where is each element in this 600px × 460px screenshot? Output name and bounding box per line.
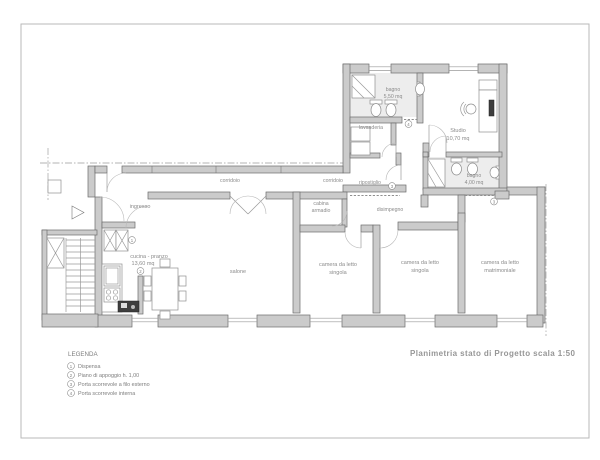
label-matrimoniale-2: matrimoniale bbox=[484, 268, 515, 274]
floor-plan-svg: ingresso cucina - pranzo 13,60 mq salone… bbox=[0, 0, 600, 460]
dining-table bbox=[144, 259, 186, 319]
stairs bbox=[66, 238, 95, 312]
legend-heading: LEGENDA bbox=[68, 351, 98, 358]
office-chair bbox=[466, 104, 476, 114]
legend-item-3: Porta scorrevole a filo esterno bbox=[78, 382, 150, 388]
label-cucina-area: 13,60 mq bbox=[132, 261, 155, 267]
label-bagno1-area: 5,50 mq bbox=[384, 94, 403, 100]
label-lavanderia: lavanderia bbox=[359, 125, 383, 131]
bidet bbox=[467, 158, 478, 162]
label-bagno2: bagno bbox=[467, 173, 482, 179]
legend: LEGENDA 1 Dispensa 2 Piano di appoggio h… bbox=[68, 351, 150, 397]
drawing-title: Planimetria stato di Progetto scala 1:50 bbox=[410, 349, 576, 358]
drawing-sheet: ingresso cucina - pranzo 13,60 mq salone… bbox=[0, 0, 600, 460]
label-camera1-1: camera da letto bbox=[319, 262, 357, 268]
kitchen-sink bbox=[104, 266, 120, 286]
label-ripostiglio: ripostiglio bbox=[359, 180, 381, 186]
label-cabina-2: armadio bbox=[312, 208, 331, 214]
legend-item-2: Piano di appoggio h. 1,00 bbox=[78, 373, 139, 379]
label-bagno2-area: 4,00 mq bbox=[465, 180, 484, 186]
stove bbox=[104, 288, 120, 302]
lavanderia-fixtures bbox=[351, 127, 370, 155]
label-camera1-2: singola bbox=[329, 270, 347, 276]
cabinet bbox=[479, 80, 497, 90]
washer bbox=[351, 142, 370, 155]
label-camera2-1: camera da letto bbox=[401, 260, 439, 266]
label-disimpegno: disimpegno bbox=[377, 207, 404, 213]
studio-furniture bbox=[461, 80, 497, 132]
legend-item-4: Porta scorrevole interna bbox=[78, 391, 135, 397]
stairs-elevator bbox=[47, 180, 95, 312]
label-studio-area: 10,70 mq bbox=[447, 136, 470, 142]
label-camera2-2: singola bbox=[411, 268, 429, 274]
desk bbox=[479, 90, 497, 132]
label-ingresso: ingresso bbox=[130, 204, 151, 210]
label-corridoio-1: corridoio bbox=[220, 178, 240, 184]
label-studio: Studio bbox=[450, 128, 466, 134]
legend-item-1: Dispensa bbox=[78, 364, 100, 370]
sink bbox=[416, 83, 425, 95]
monitor bbox=[489, 100, 494, 116]
label-matrimoniale-1: camera da letto bbox=[481, 260, 519, 266]
pillar bbox=[48, 180, 61, 193]
label-bagno1: bagno bbox=[386, 87, 401, 93]
label-cabina-1: cabina bbox=[313, 201, 328, 207]
sink bbox=[490, 167, 499, 178]
label-salone: salone bbox=[230, 269, 246, 275]
entry-arrow bbox=[72, 206, 84, 219]
label-cucina: cucina - pranzo bbox=[130, 254, 168, 260]
toilet bbox=[451, 158, 462, 162]
label-corridoio-2: corridoio bbox=[323, 178, 343, 184]
